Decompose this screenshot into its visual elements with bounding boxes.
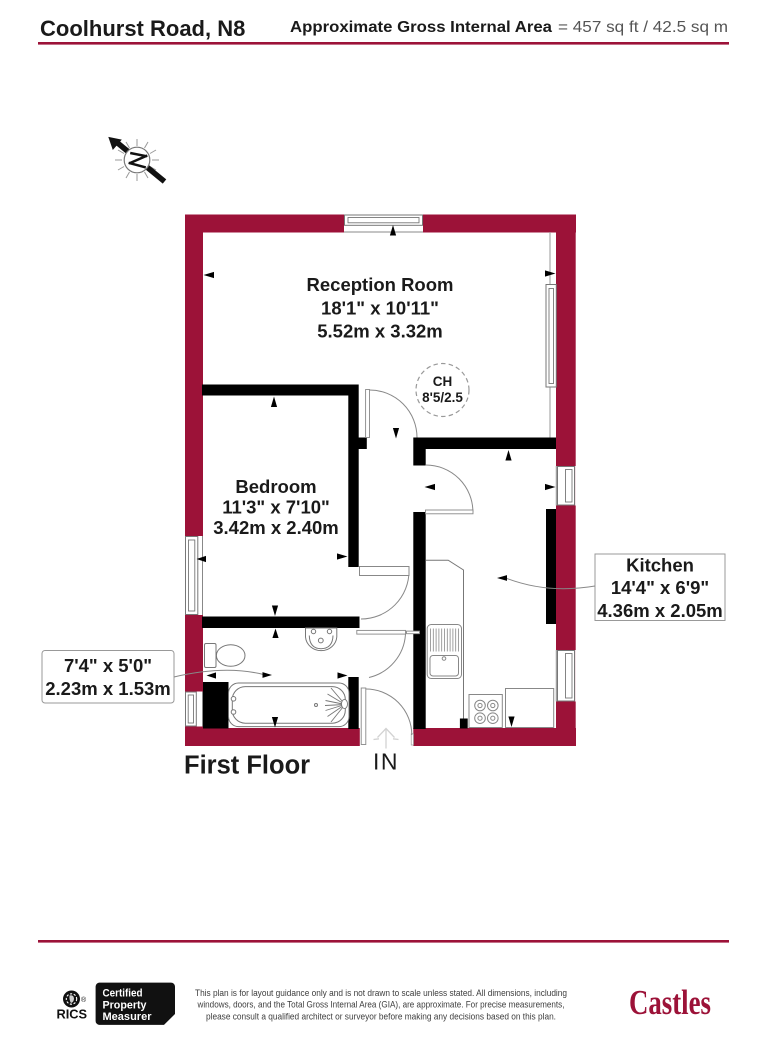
svg-text:Property: Property xyxy=(103,999,148,1011)
svg-text:IN: IN xyxy=(373,749,399,775)
svg-text:This plan is for layout guidan: This plan is for layout guidance only an… xyxy=(195,988,567,999)
svg-text:Approximate Gross Internal Are: Approximate Gross Internal Area= 457 sq … xyxy=(290,19,728,36)
svg-text:Measurer: Measurer xyxy=(103,1011,153,1023)
svg-text:Bedroom: Bedroom xyxy=(235,476,316,497)
svg-text:5.52m x 3.32m: 5.52m x 3.32m xyxy=(317,321,442,342)
svg-text:Kitchen: Kitchen xyxy=(626,555,694,576)
svg-text:18'1" x 10'11": 18'1" x 10'11" xyxy=(321,298,439,319)
svg-text:14'4" x 6'9": 14'4" x 6'9" xyxy=(611,577,709,598)
svg-text:Castles: Castles xyxy=(629,983,711,1022)
svg-text:First Floor: First Floor xyxy=(184,752,310,780)
svg-text:8'5/2.5: 8'5/2.5 xyxy=(422,390,463,405)
svg-text:CH: CH xyxy=(433,374,453,389)
svg-text:2.23m x 1.53m: 2.23m x 1.53m xyxy=(45,678,170,699)
svg-text:11'3" x 7'10": 11'3" x 7'10" xyxy=(222,497,330,518)
svg-text:Certified: Certified xyxy=(103,988,143,1000)
svg-text:7'4" x 5'0": 7'4" x 5'0" xyxy=(64,655,152,676)
svg-text:Coolhurst Road, N8: Coolhurst Road, N8 xyxy=(40,16,245,41)
svg-text:RICS: RICS xyxy=(57,1007,88,1022)
svg-text:Reception Room: Reception Room xyxy=(307,274,454,295)
svg-text:windows, doors, and the Total: windows, doors, and the Total Gross Inte… xyxy=(197,1000,565,1011)
svg-text:please consult a qualified arc: please consult a qualified architect or … xyxy=(206,1011,556,1022)
svg-text:4.36m x 2.05m: 4.36m x 2.05m xyxy=(597,600,722,621)
svg-text:®: ® xyxy=(81,996,87,1004)
svg-text:3.42m x 2.40m: 3.42m x 2.40m xyxy=(213,517,338,538)
